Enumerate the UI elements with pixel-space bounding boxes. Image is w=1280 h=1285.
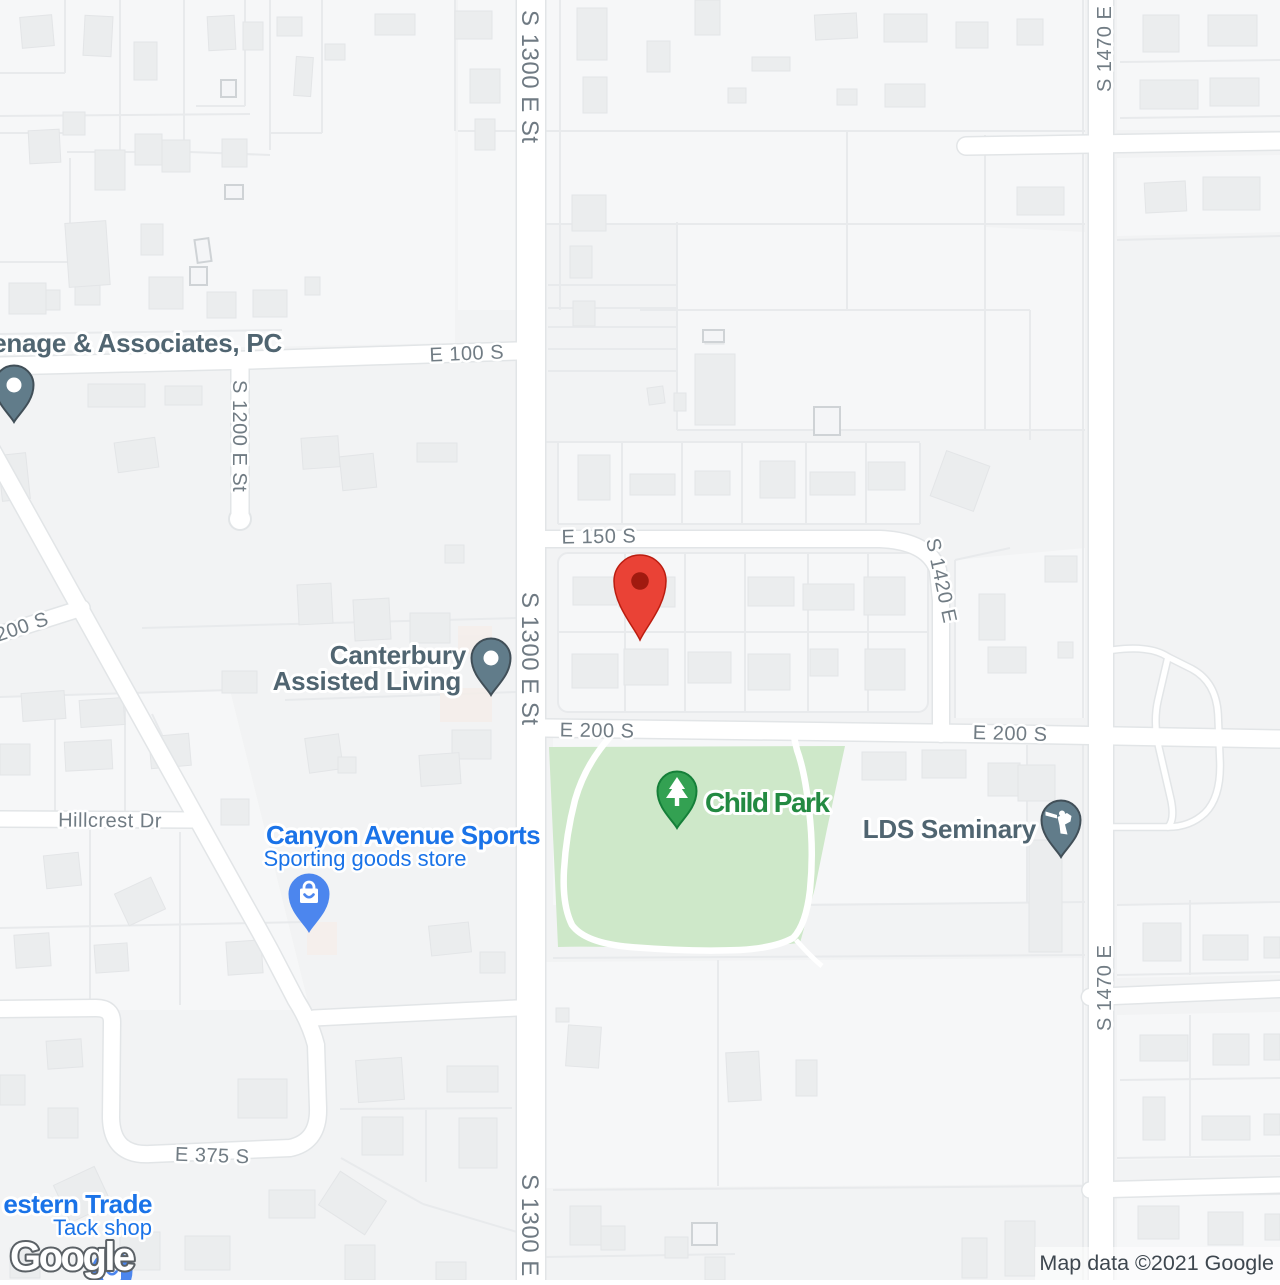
svg-text:Child Park: Child Park <box>705 787 830 818</box>
svg-text:Hillcrest Dr: Hillcrest Dr <box>58 810 162 833</box>
svg-text:Google: Google <box>10 1235 134 1279</box>
svg-text:E 150 S: E 150 S <box>561 525 636 548</box>
svg-text:S 1300 E St: S 1300 E St <box>516 592 543 726</box>
svg-text:enage & Associates, PC: enage & Associates, PC <box>0 328 282 358</box>
svg-text:S 1200 E St: S 1200 E St <box>228 380 250 492</box>
svg-text:E 100 S: E 100 S <box>429 341 505 366</box>
svg-text:E 200 S: E 200 S <box>560 719 635 742</box>
svg-text:E 375 S: E 375 S <box>175 1144 250 1169</box>
svg-text:Map data ©2021 Google: Map data ©2021 Google <box>1039 1251 1274 1275</box>
svg-text:S 1470 E: S 1470 E <box>1094 945 1116 1031</box>
svg-text:E 200 S: E 200 S <box>973 722 1048 746</box>
svg-text:S 1470 E: S 1470 E <box>1094 6 1116 92</box>
svg-text:S 1300 E St: S 1300 E St <box>516 10 543 144</box>
svg-text:LDS Seminary: LDS Seminary <box>863 814 1037 844</box>
svg-text:Assisted Living: Assisted Living <box>273 666 461 696</box>
svg-text:Sporting goods store: Sporting goods store <box>263 846 466 871</box>
svg-text:S 1300 E St: S 1300 E St <box>516 1174 543 1280</box>
